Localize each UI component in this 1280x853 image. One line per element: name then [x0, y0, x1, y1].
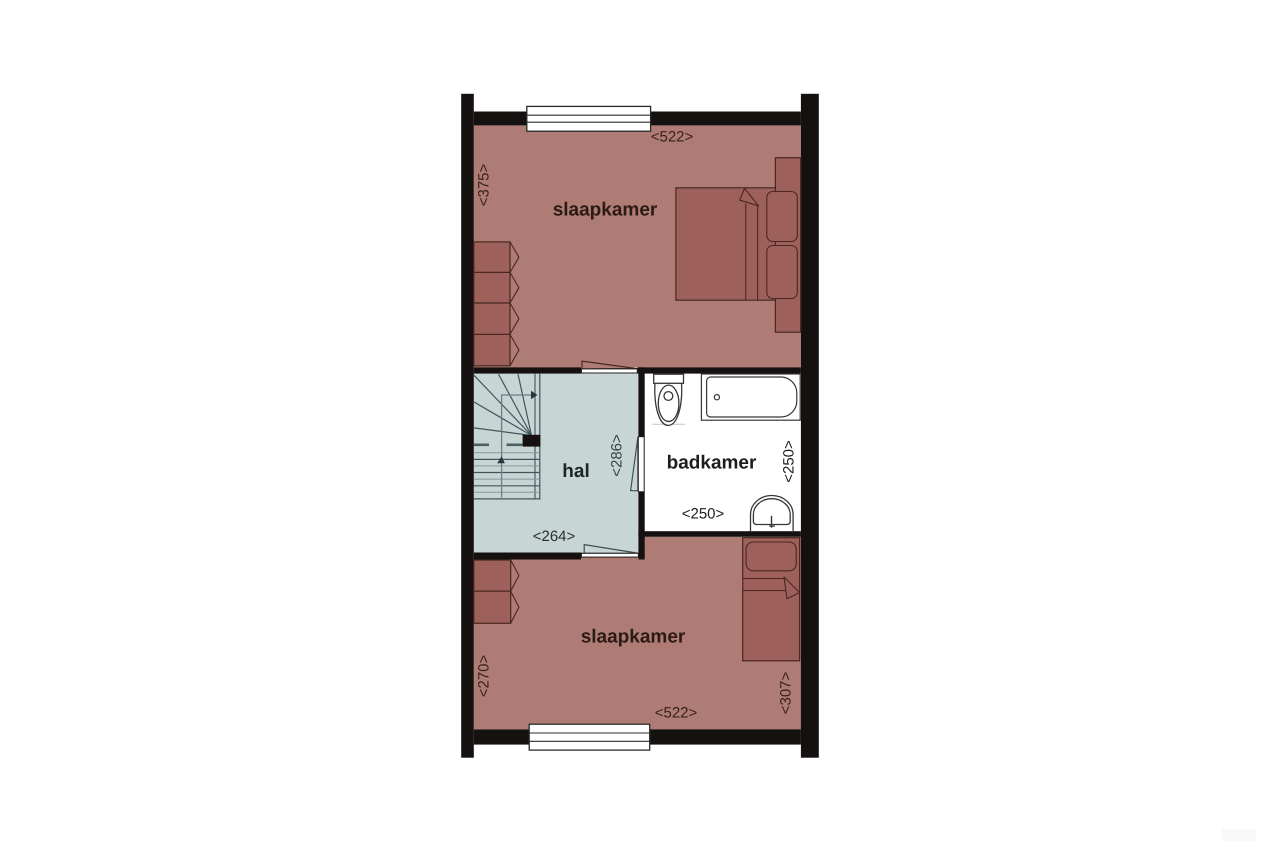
- svg-text:slaapkamer: slaapkamer: [581, 627, 686, 648]
- svg-text:<250>: <250>: [781, 440, 798, 483]
- svg-text:<522>: <522>: [651, 129, 694, 146]
- svg-text:<264>: <264>: [533, 528, 576, 545]
- svg-text:<250>: <250>: [682, 506, 725, 523]
- svg-text:<270>: <270>: [476, 654, 493, 697]
- svg-text:<286>: <286>: [609, 434, 626, 477]
- svg-text:<375>: <375>: [476, 163, 493, 206]
- svg-text:badkamer: badkamer: [667, 453, 757, 474]
- svg-text:hal: hal: [562, 461, 589, 482]
- svg-text:slaapkamer: slaapkamer: [553, 200, 658, 221]
- svg-text:<522>: <522>: [655, 705, 698, 722]
- svg-text:<307>: <307>: [778, 671, 795, 714]
